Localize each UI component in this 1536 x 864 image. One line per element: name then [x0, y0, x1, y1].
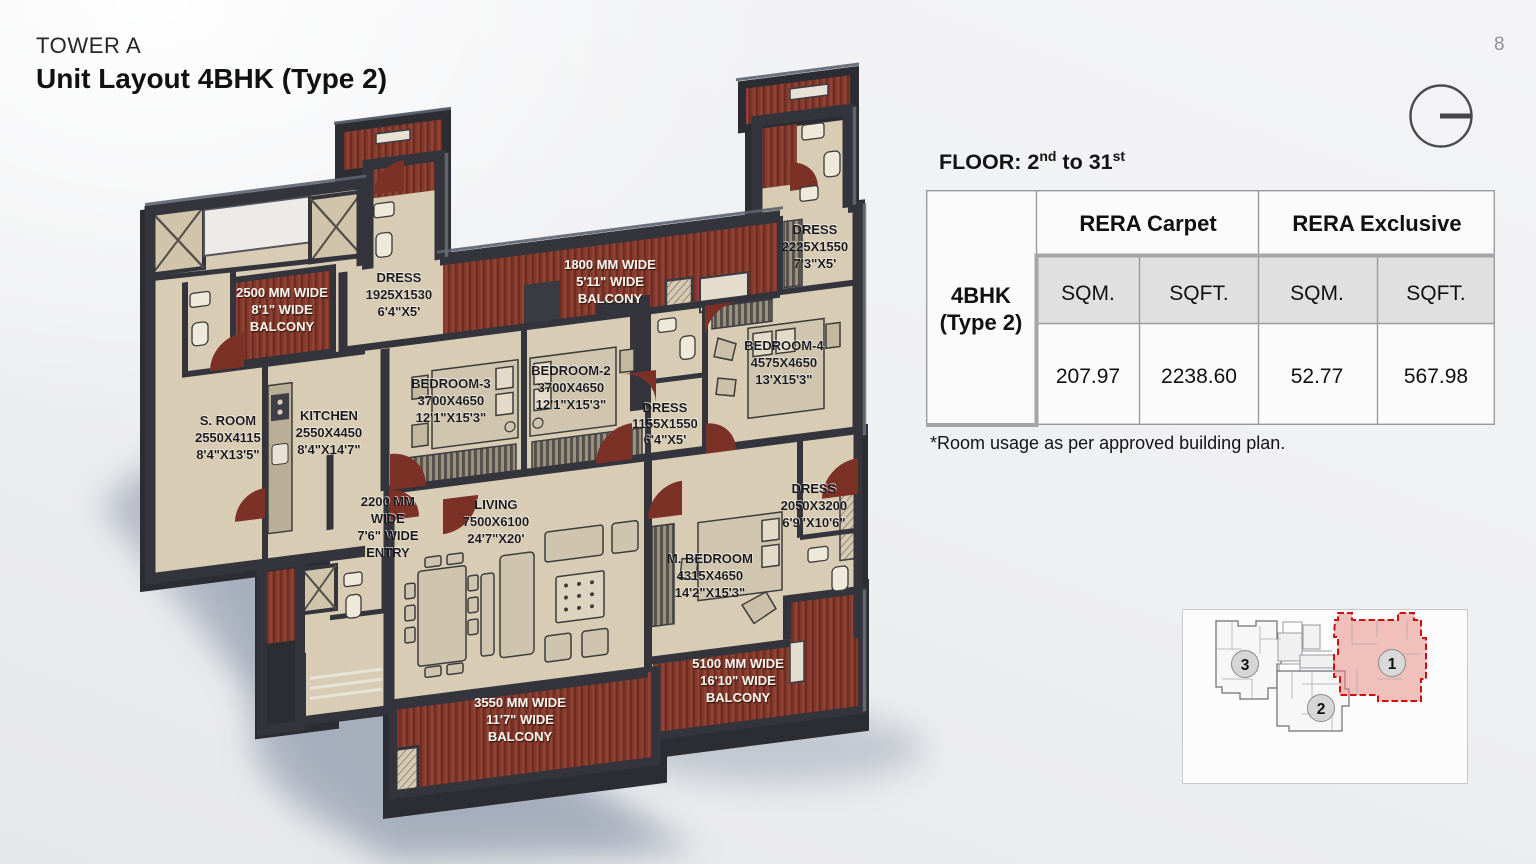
svg-text:1800 MM WIDE: 1800 MM WIDE — [564, 257, 656, 272]
svg-text:M. BEDROOM: M. BEDROOM — [667, 551, 753, 566]
svg-text:1925X1530: 1925X1530 — [366, 287, 433, 302]
svg-text:SQM.: SQM. — [1290, 282, 1344, 305]
svg-text:14'2"X15'3": 14'2"X15'3" — [675, 585, 746, 600]
svg-text:BALCONY: BALCONY — [706, 690, 771, 705]
svg-text:8'4"X13'5": 8'4"X13'5" — [196, 447, 259, 462]
svg-text:2238.60: 2238.60 — [1161, 365, 1237, 388]
svg-text:1155X1550: 1155X1550 — [632, 416, 698, 431]
svg-text:DRESS: DRESS — [643, 400, 688, 415]
svg-text:DRESS: DRESS — [793, 222, 838, 237]
svg-text:6'4"X5': 6'4"X5' — [644, 432, 687, 447]
svg-text:12'1"X15'3": 12'1"X15'3" — [536, 397, 607, 412]
svg-text:4BHK: 4BHK — [951, 283, 1011, 308]
svg-text:4315X4650: 4315X4650 — [677, 568, 744, 583]
svg-text:11'7" WIDE: 11'7" WIDE — [486, 712, 554, 727]
svg-text:8'4"X14'7": 8'4"X14'7" — [297, 442, 360, 457]
svg-text:BEDROOM-3: BEDROOM-3 — [411, 376, 490, 391]
svg-text:8'1" WIDE: 8'1" WIDE — [251, 302, 313, 317]
svg-text:3: 3 — [1241, 657, 1250, 674]
svg-text:52.77: 52.77 — [1291, 365, 1344, 388]
svg-text:ENTRY: ENTRY — [366, 545, 410, 560]
svg-text:5'11" WIDE: 5'11" WIDE — [576, 274, 644, 289]
svg-text:BALCONY: BALCONY — [578, 291, 643, 306]
svg-text:DRESS: DRESS — [792, 481, 837, 496]
svg-text:SQFT.: SQFT. — [1406, 282, 1466, 305]
svg-text:13'X15'3": 13'X15'3" — [755, 372, 812, 387]
svg-text:2: 2 — [1317, 701, 1326, 718]
svg-text:2050X3200: 2050X3200 — [781, 498, 848, 513]
svg-text:16'10" WIDE: 16'10" WIDE — [700, 673, 776, 688]
svg-text:2550X4450: 2550X4450 — [296, 425, 363, 440]
svg-text:24'7"X20': 24'7"X20' — [467, 531, 524, 546]
svg-text:BALCONY: BALCONY — [250, 319, 315, 334]
svg-text:3700X4650: 3700X4650 — [418, 393, 485, 408]
svg-text:DRESS: DRESS — [377, 270, 422, 285]
svg-text:2500 MM WIDE: 2500 MM WIDE — [236, 285, 328, 300]
svg-text:5100 MM WIDE: 5100 MM WIDE — [692, 656, 784, 671]
svg-text:KITCHEN: KITCHEN — [300, 408, 358, 423]
svg-text:RERA Carpet: RERA Carpet — [1079, 211, 1217, 236]
svg-text:3550 MM WIDE: 3550 MM WIDE — [474, 695, 566, 710]
svg-text:S. ROOM: S. ROOM — [200, 413, 256, 428]
svg-text:4575X4650: 4575X4650 — [751, 355, 818, 370]
svg-text:6'9"X10'6": 6'9"X10'6" — [782, 515, 845, 530]
svg-text:SQM.: SQM. — [1061, 282, 1115, 305]
svg-text:2225X1550: 2225X1550 — [782, 239, 849, 254]
svg-text:3700X4650: 3700X4650 — [538, 380, 605, 395]
svg-text:6'4"X5': 6'4"X5' — [378, 304, 421, 319]
svg-text:BALCONY: BALCONY — [488, 729, 553, 744]
svg-text:LIVING: LIVING — [474, 497, 517, 512]
svg-text:567.98: 567.98 — [1404, 365, 1468, 388]
svg-text:BEDROOM-4: BEDROOM-4 — [744, 338, 824, 353]
svg-text:12'1"X15'3": 12'1"X15'3" — [416, 410, 487, 425]
svg-text:7'6" WIDE: 7'6" WIDE — [357, 528, 419, 543]
svg-text:2550X4115: 2550X4115 — [195, 430, 261, 445]
svg-text:7500X6100: 7500X6100 — [463, 514, 530, 529]
svg-text:(Type 2): (Type 2) — [940, 310, 1023, 335]
svg-text:2200 MM: 2200 MM — [361, 494, 415, 509]
svg-text:BEDROOM-2: BEDROOM-2 — [531, 363, 610, 378]
svg-text:WIDE: WIDE — [371, 511, 405, 526]
svg-text:1: 1 — [1388, 656, 1397, 673]
svg-text:207.97: 207.97 — [1056, 365, 1120, 388]
svg-text:7'3"X5': 7'3"X5' — [794, 256, 837, 271]
svg-text:SQFT.: SQFT. — [1169, 282, 1229, 305]
svg-text:RERA Exclusive: RERA Exclusive — [1292, 211, 1461, 236]
